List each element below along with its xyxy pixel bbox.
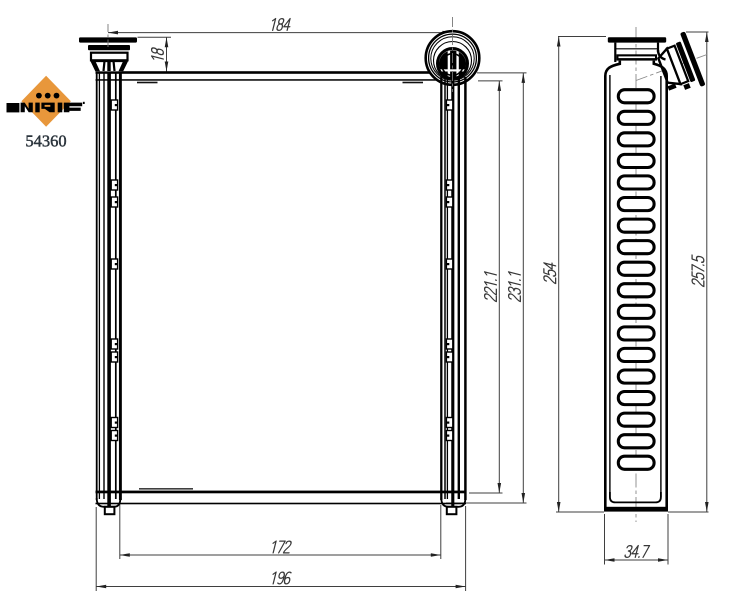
- svg-text:54360: 54360: [25, 132, 66, 151]
